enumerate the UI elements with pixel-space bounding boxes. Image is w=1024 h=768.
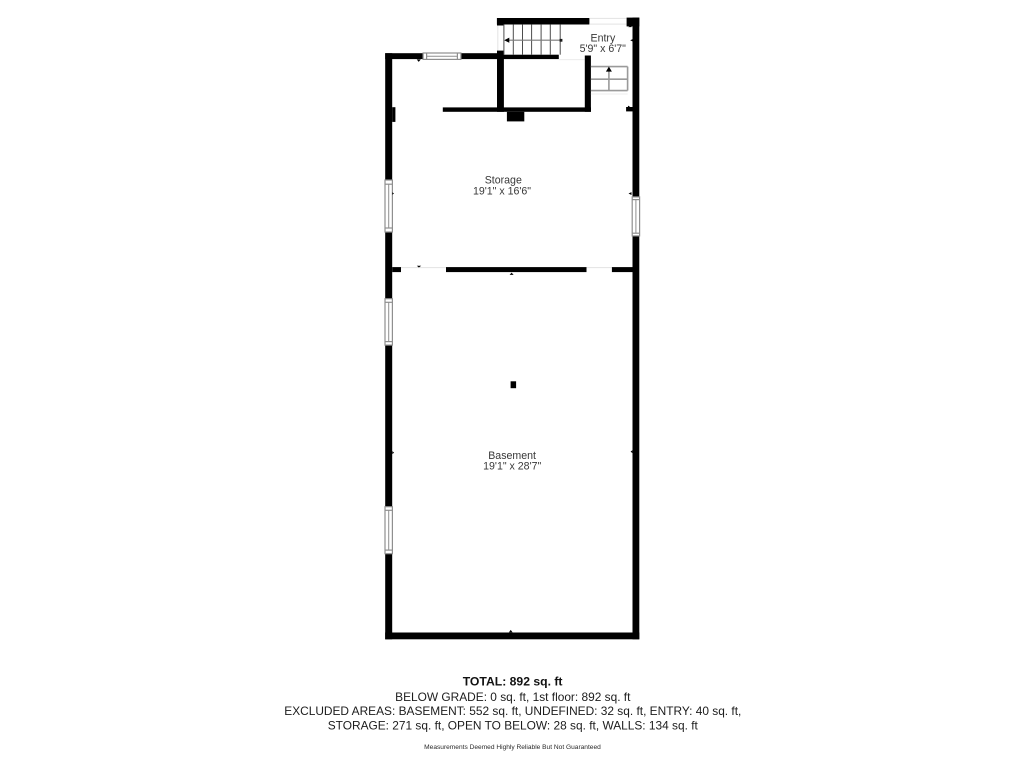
svg-text:TOTAL: 892 sq. ft: TOTAL: 892 sq. ft	[463, 675, 563, 689]
svg-text:Measurements Deemed Highly Rel: Measurements Deemed Highly Reliable But …	[424, 744, 601, 751]
svg-text:19'1" x 28'7": 19'1" x 28'7"	[483, 461, 541, 473]
svg-text:BELOW GRADE: 0 sq. ft, 1st flo: BELOW GRADE: 0 sq. ft, 1st floor: 892 sq…	[395, 690, 631, 704]
svg-text:19'1" x 16'6": 19'1" x 16'6"	[473, 186, 531, 198]
svg-text:5'9" x 6'7": 5'9" x 6'7"	[580, 43, 627, 55]
svg-text:STORAGE: 271 sq. ft, OPEN TO B: STORAGE: 271 sq. ft, OPEN TO BELOW: 28 s…	[328, 719, 699, 733]
svg-text:Storage: Storage	[485, 174, 522, 186]
svg-text:EXCLUDED AREAS: BASEMENT: 552: EXCLUDED AREAS: BASEMENT: 552 sq. ft, UN…	[284, 704, 741, 718]
